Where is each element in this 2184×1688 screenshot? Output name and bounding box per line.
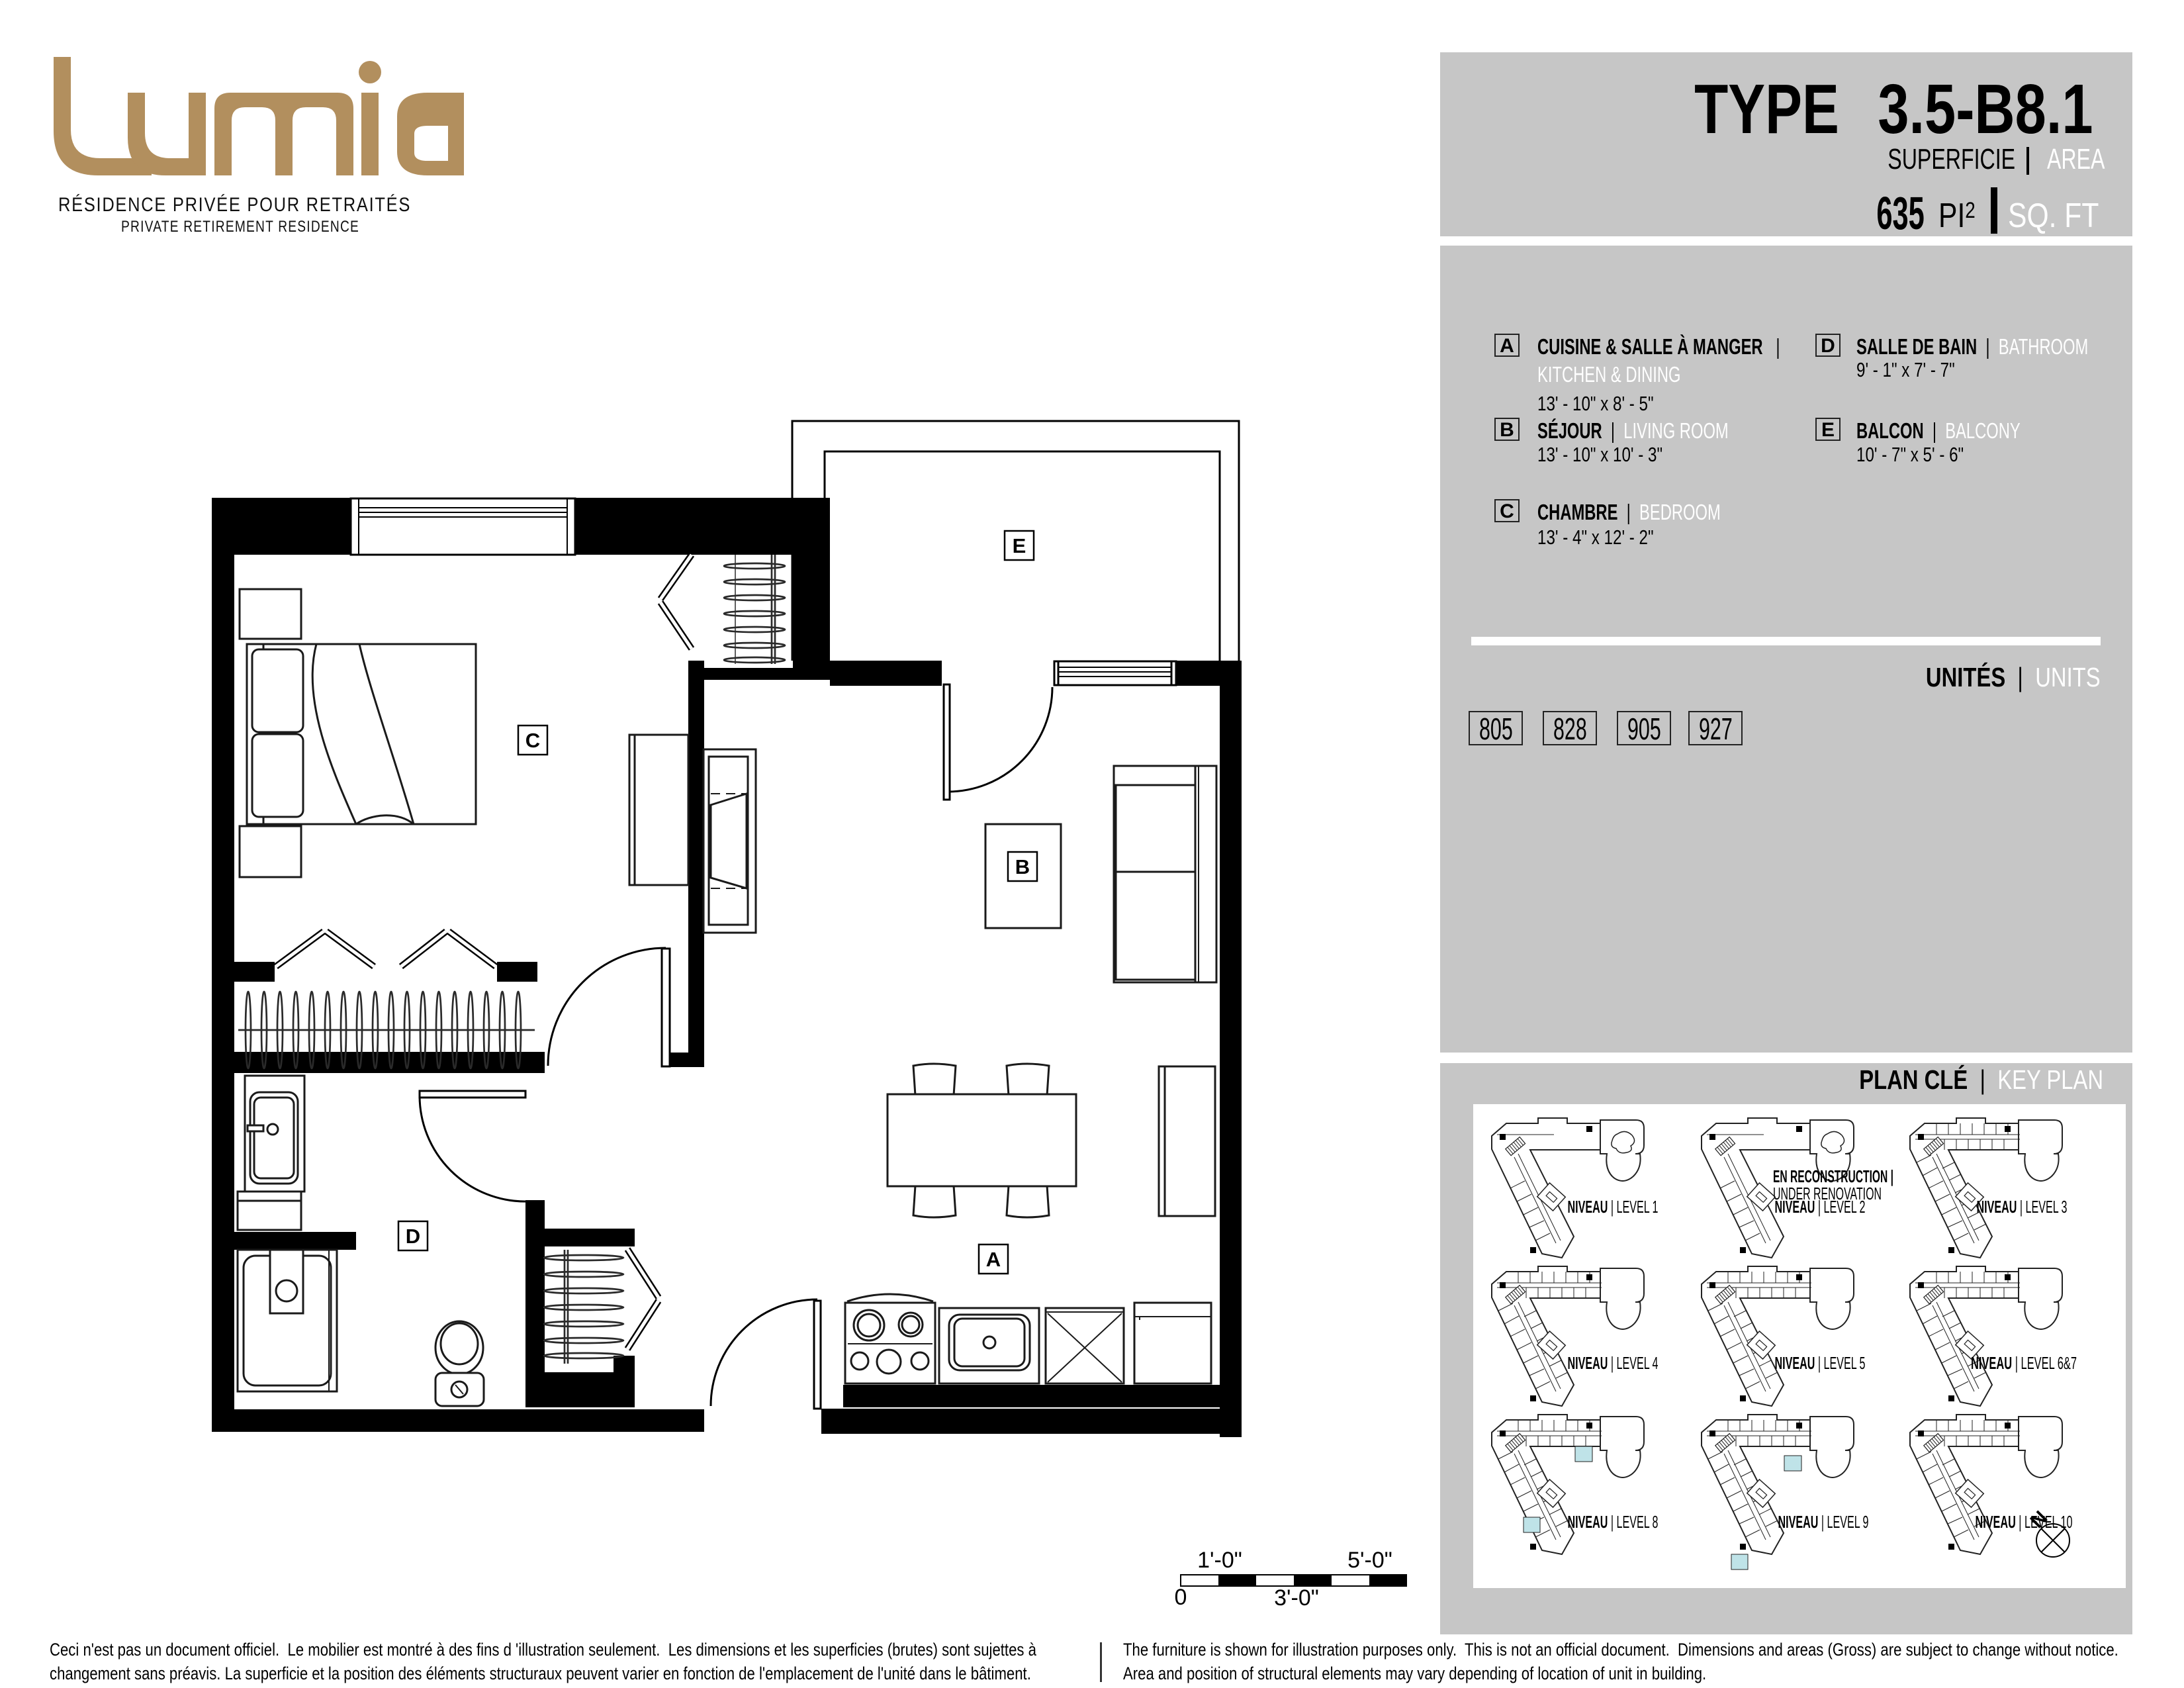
svg-text:A: A xyxy=(986,1248,1001,1271)
svg-text:E: E xyxy=(1013,534,1026,557)
svg-text:1'-0": 1'-0" xyxy=(1197,1548,1242,1573)
svg-text:C: C xyxy=(525,729,540,752)
svg-text:5'-0": 5'-0" xyxy=(1347,1548,1392,1573)
svg-text:B: B xyxy=(1015,855,1030,878)
svg-text:D: D xyxy=(406,1225,420,1248)
svg-text:0: 0 xyxy=(1175,1585,1187,1610)
svg-text:3'-0": 3'-0" xyxy=(1274,1585,1319,1611)
